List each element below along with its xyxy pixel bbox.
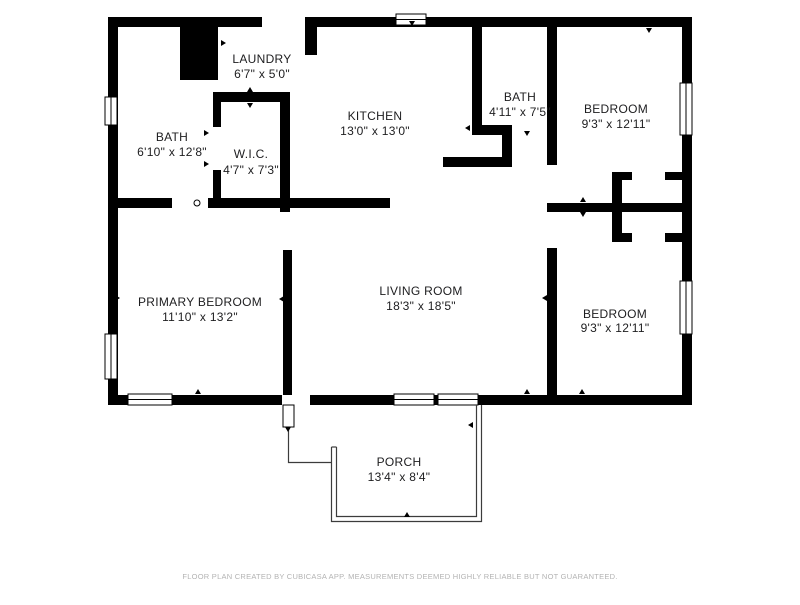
wall-ext-bottom-right: [310, 395, 692, 405]
room-dims-kitchen: 13'0" x 13'0": [340, 124, 410, 138]
door-marker-icon: [204, 130, 209, 136]
door-marker-icon: [204, 161, 209, 167]
door-marker-icon: [580, 197, 586, 202]
door-marker-icon: [404, 512, 410, 517]
room-dims-bedroom-bottom: 9'3" x 12'11": [581, 321, 650, 335]
wall-wic-right: [280, 92, 290, 212]
wall-closet-bot-left: [622, 233, 632, 242]
wall-kitchen-jog-h: [443, 157, 512, 167]
door-leaf-icon: [283, 405, 294, 427]
wall-mid-wall-left: [118, 198, 172, 208]
room-label-bath-2: BATH: [504, 90, 536, 104]
room-dims-bath-2: 4'11" x 7'5": [489, 105, 551, 119]
room-dims-laundry: 6'7" x 5'0": [234, 67, 290, 81]
wall-hall-bedroom-wall: [557, 203, 692, 212]
wall-closet-bot-right: [665, 233, 682, 242]
door-marker-icon: [646, 28, 652, 33]
wall-closet-top-left: [622, 172, 632, 180]
porch-step-line: [289, 427, 332, 463]
room-label-primary-bedroom: PRIMARY BEDROOM: [138, 295, 262, 309]
wall-ext-top-right: [305, 17, 692, 27]
wall-primary-living: [283, 250, 292, 395]
opening-marker-icon: [194, 200, 200, 206]
wall-mid-wall-center: [208, 198, 390, 208]
door-marker-icon: [524, 389, 530, 394]
room-label-kitchen: KITCHEN: [348, 109, 403, 123]
door-marker-icon: [580, 212, 586, 217]
wall-divider-bottom: [547, 248, 557, 395]
room-label-bedroom-top: BEDROOM: [584, 102, 648, 116]
room-label-porch: PORCH: [377, 455, 422, 469]
door-marker-icon: [285, 427, 291, 432]
door-marker-icon: [195, 389, 201, 394]
floorplan-svg: BATH6'10" x 12'8"LAUNDRY6'7" x 5'0"W.I.C…: [0, 0, 800, 600]
door-marker-icon: [279, 296, 284, 302]
room-label-wic: W.I.C.: [234, 147, 268, 161]
wall-chimney-block: [180, 17, 218, 80]
door-marker-icon: [465, 125, 470, 131]
floorplan-canvas: BATH6'10" x 12'8"LAUNDRY6'7" x 5'0"W.I.C…: [0, 0, 800, 600]
wall-divider-junction: [547, 203, 557, 212]
door-marker-icon: [247, 87, 253, 92]
door-marker-icon: [524, 131, 530, 136]
room-label-living-room: LIVING ROOM: [379, 284, 462, 298]
door-marker-icon: [468, 422, 473, 428]
door-marker-icon: [579, 389, 585, 394]
room-dims-primary-bedroom: 11'10" x 13'2": [162, 310, 238, 324]
wall-laundry-stub: [305, 17, 317, 55]
room-dims-porch: 13'4" x 8'4": [368, 470, 431, 484]
room-dims-bath-1: 6'10" x 12'8": [137, 145, 207, 159]
door-marker-icon: [542, 295, 547, 301]
room-dims-bedroom-top: 9'3" x 12'11": [582, 117, 651, 131]
wall-wic-top: [213, 92, 290, 102]
door-marker-icon: [221, 40, 226, 46]
wall-closet-top-right: [665, 172, 682, 180]
wall-kitchen-right: [472, 27, 482, 130]
wall-closet-mid-wall: [612, 172, 622, 242]
disclaimer-text: FLOOR PLAN CREATED BY CUBICASA APP. MEAS…: [0, 572, 800, 581]
wall-divider-top: [547, 27, 557, 165]
room-label-bedroom-bottom: BEDROOM: [583, 307, 647, 321]
room-label-laundry: LAUNDRY: [232, 52, 291, 66]
room-dims-living-room: 18'3" x 18'5": [386, 299, 456, 313]
room-label-bath-1: BATH: [156, 130, 188, 144]
room-dims-wic: 4'7" x 7'3": [223, 163, 279, 177]
door-marker-icon: [247, 103, 253, 108]
